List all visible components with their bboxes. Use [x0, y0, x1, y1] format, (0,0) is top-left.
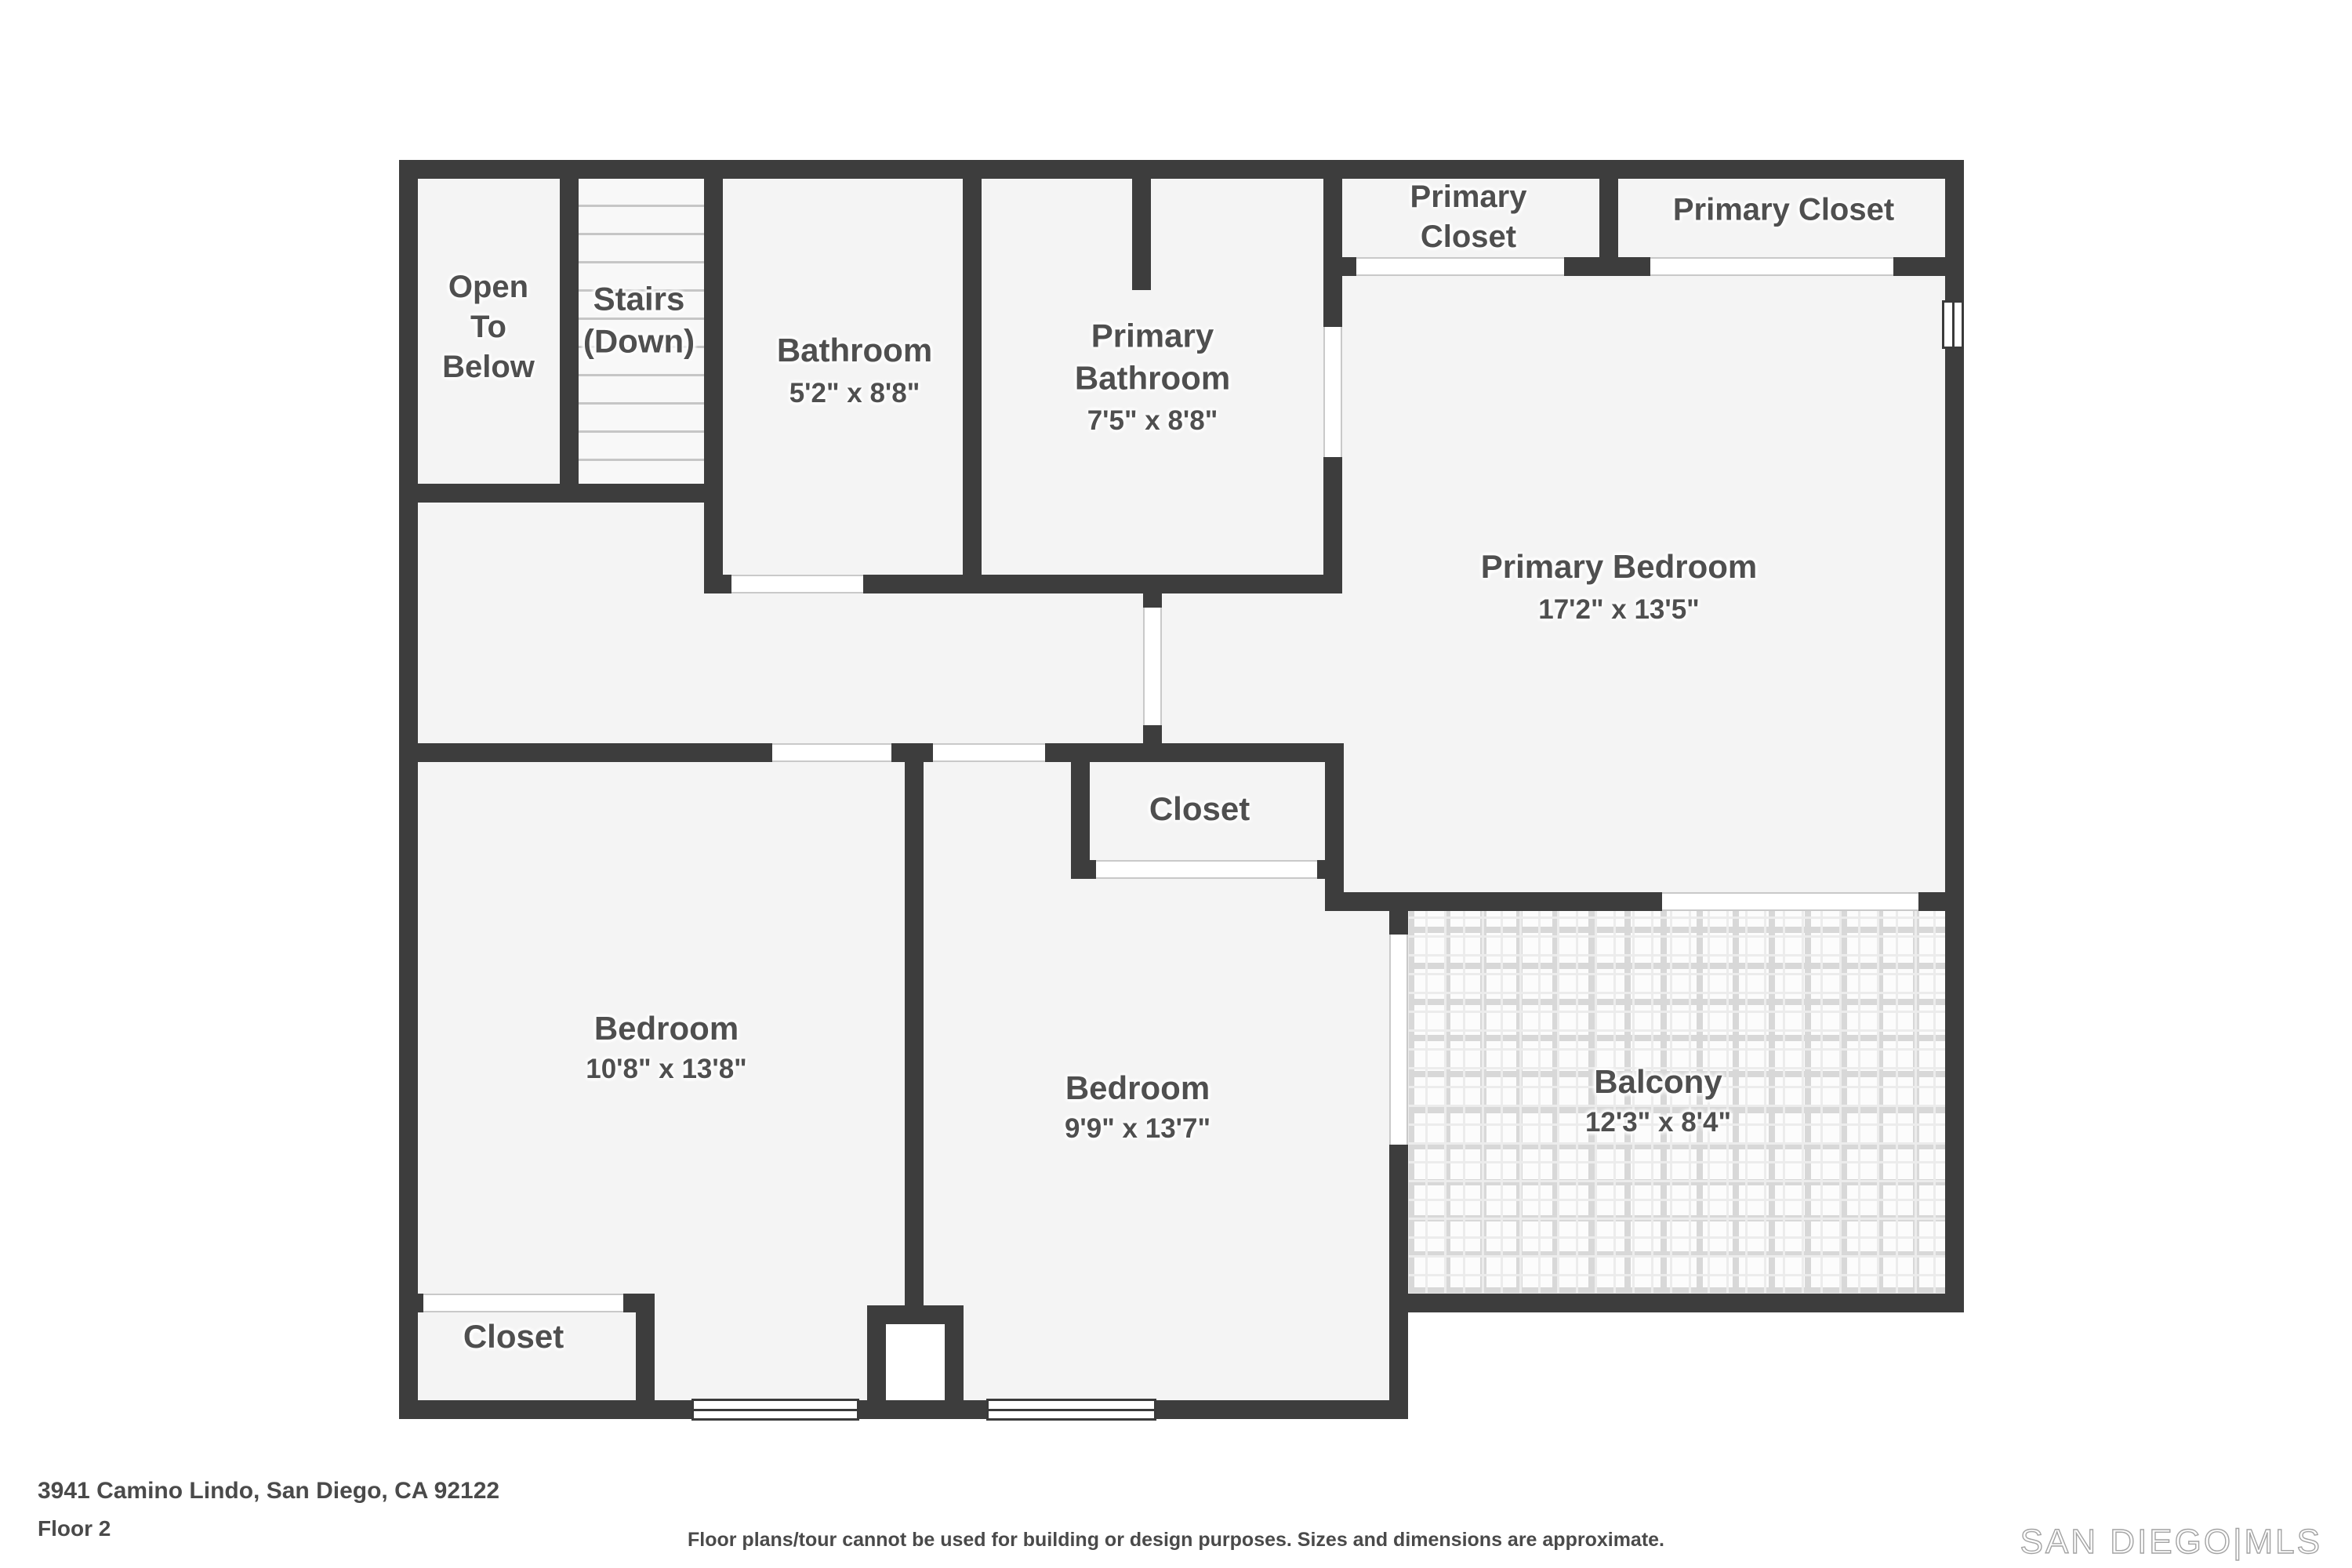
- disclaimer-text: Floor plans/tour cannot be used for buil…: [0, 1529, 2352, 1552]
- room-label-balcony: Balcony: [1594, 1061, 1722, 1103]
- room-dims-bathroom: 5'2" x 8'8": [789, 377, 920, 410]
- wall-notch-right: [945, 1305, 964, 1419]
- wall-bottom: [399, 1400, 1408, 1419]
- room-dims-primary-bedroom: 17'2" x 13'5": [1538, 593, 1700, 626]
- door-primary-closet-left: [1356, 257, 1564, 276]
- door-primary-closet-right: [1650, 257, 1893, 276]
- floor-plan-canvas: Open To Below Stairs (Down) Bathroom 5'2…: [0, 0, 2352, 1568]
- door-middle-closet: [1096, 860, 1317, 879]
- window-primary-bedroom-right: [1942, 300, 1964, 349]
- wall-open-to-below-bottom: [399, 484, 723, 503]
- san-diego-mls-logo: SAN DIEGO|MLS: [2020, 1523, 2322, 1562]
- room-label-primary-bedroom: Primary Bedroom: [1481, 546, 1757, 588]
- room-label-primary-closet-left: Primary Closet: [1410, 177, 1527, 257]
- wall-open-to-below-right: [560, 160, 579, 503]
- floor-plan-page: { "colors":{"wall":"#3d3d3d","floor":"#f…: [0, 0, 2352, 1568]
- door-bathroom: [731, 575, 863, 593]
- wall-balcony-bottom: [1389, 1294, 1964, 1312]
- door-primary-bathroom: [1323, 327, 1342, 457]
- room-label-primary-closet-right: Primary Closet: [1673, 190, 1894, 230]
- room-label-middle-closet: Closet: [1149, 788, 1250, 830]
- room-label-bedroom-left: Bedroom: [594, 1007, 739, 1050]
- door-bedroom-middle: [933, 743, 1045, 762]
- room-label-bottom-closet: Closet: [463, 1316, 564, 1358]
- wall-middle-closet-left: [1071, 743, 1090, 879]
- wall-notch-left: [867, 1305, 886, 1419]
- exterior-below-balcony: [1408, 1312, 1964, 1422]
- wall-stairs-right: [704, 160, 723, 593]
- room-label-stairs: Stairs (Down): [583, 278, 695, 362]
- window-bedroom-left: [691, 1399, 859, 1421]
- room-dims-primary-bathroom: 7'5" x 8'8": [1087, 405, 1218, 437]
- door-bottom-closet: [423, 1294, 623, 1312]
- door-balcony-slider: [1662, 892, 1918, 911]
- room-label-primary-bathroom: Primary Bathroom: [1075, 314, 1230, 399]
- door-primary-bedroom: [1143, 608, 1162, 725]
- room-label-bedroom-middle: Bedroom: [1065, 1067, 1210, 1109]
- window-bedroom-middle: [986, 1399, 1156, 1421]
- wall-bottom-closet-right: [636, 1294, 655, 1419]
- room-label-open-to-below: Open To Below: [442, 267, 535, 388]
- window-balcony-side: [1389, 935, 1408, 1145]
- room-dims-balcony: 12'3" x 8'4": [1585, 1106, 1731, 1139]
- wall-bathroom-divider: [963, 160, 982, 593]
- wall-primary-bathroom-stub: [1132, 179, 1151, 290]
- room-label-bathroom: Bathroom: [777, 329, 932, 372]
- room-dims-bedroom-left: 10'8" x 13'8": [586, 1053, 747, 1086]
- wall-middle-closet-right: [1325, 743, 1344, 911]
- door-bedroom-left: [772, 743, 891, 762]
- wall-top: [399, 160, 1964, 179]
- property-address: 3941 Camino Lindo, San Diego, CA 92122: [38, 1478, 499, 1504]
- wall-left: [399, 160, 418, 1419]
- room-dims-bedroom-middle: 9'9" x 13'7": [1065, 1112, 1210, 1145]
- wall-between-bedrooms: [905, 743, 924, 1324]
